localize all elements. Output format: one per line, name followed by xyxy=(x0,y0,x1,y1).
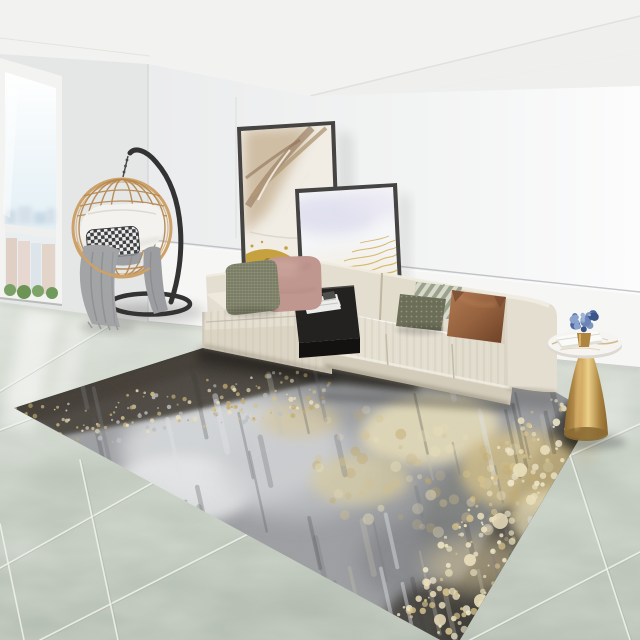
pillow-dark-olive xyxy=(396,294,446,335)
pillow-rust xyxy=(447,290,506,343)
gold-vase xyxy=(577,333,591,347)
window-city-view xyxy=(0,58,62,305)
gold-reflection xyxy=(574,438,598,466)
living-room-photo xyxy=(0,0,640,640)
scene-canvas xyxy=(0,0,640,640)
pillow-olive-check xyxy=(226,260,280,317)
